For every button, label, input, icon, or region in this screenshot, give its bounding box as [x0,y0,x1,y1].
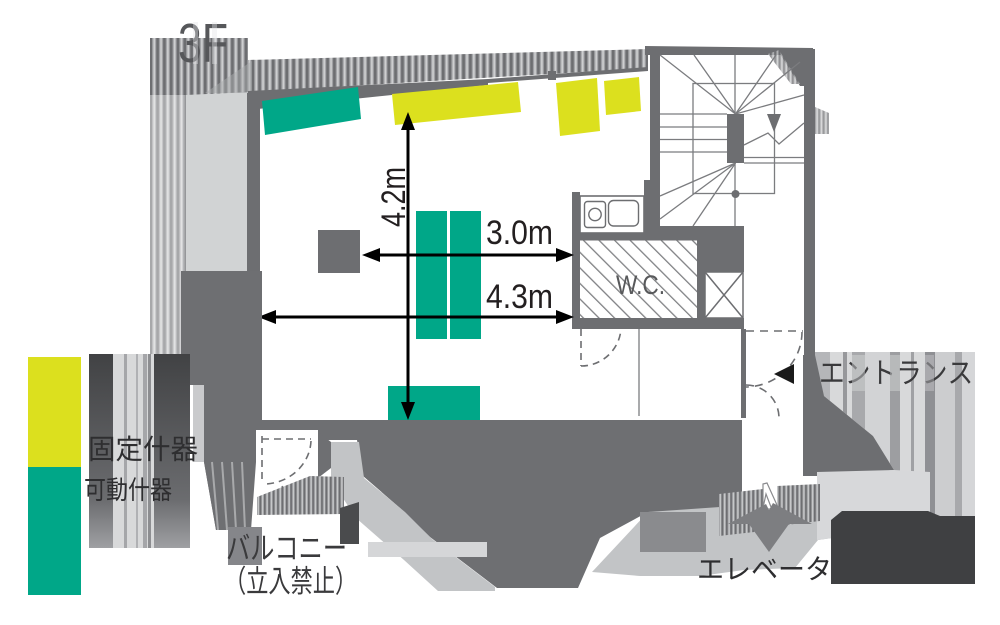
svg-text:4.3m: 4.3m [486,278,553,316]
svg-text:3.0m: 3.0m [486,214,553,252]
svg-text:3F: 3F [178,12,228,74]
svg-text:4.2m: 4.2m [375,167,413,227]
svg-text:W.C.: W.C. [616,270,665,300]
